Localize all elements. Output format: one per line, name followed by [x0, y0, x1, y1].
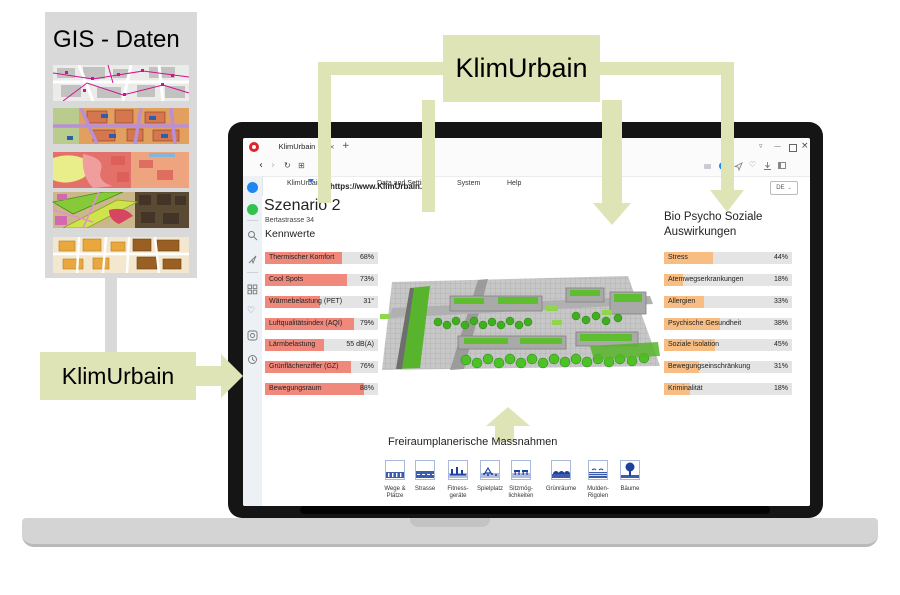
klimurbain-top-label: KlimUrbain: [443, 35, 600, 102]
scenario-subtitle: Bertastrasse 34: [265, 217, 314, 224]
metric-bar: Wärmebelastung (PET)31°: [265, 296, 378, 308]
massnahme-label: Bäume: [608, 486, 652, 493]
metric-bar: Allergien33%: [664, 296, 792, 308]
connector-to-menu: [318, 62, 331, 203]
up-arrow-head: [486, 407, 530, 426]
connector-top-left-horizontal: [318, 62, 443, 75]
left-arrow-head: [221, 354, 243, 398]
heart-icon[interactable]: ♡: [247, 306, 255, 316]
metric-bar: Lärmbelastung55 dB(A): [265, 339, 378, 351]
metric-bar: Psychische Gesundheit38%: [664, 318, 792, 330]
menu-item-klimurbain[interactable]: KlimUrbain: [287, 180, 321, 187]
gruenraeume-icon: [551, 460, 571, 480]
zoning-map: [52, 108, 190, 144]
bar-value: 45%: [774, 339, 788, 351]
send-to-flow-icon[interactable]: [734, 162, 743, 171]
bar-label: Stress: [668, 252, 688, 264]
bar-value: 33%: [774, 296, 788, 308]
speed-dial-icon[interactable]: ⊞: [298, 161, 305, 170]
bookmark-heart-icon[interactable]: ♡: [749, 160, 756, 169]
new-tab-button[interactable]: +: [342, 141, 350, 151]
fitnessgeraete-icon: [448, 460, 468, 480]
opera-logo-icon[interactable]: [249, 142, 259, 152]
snapshot-icon[interactable]: [704, 164, 711, 169]
baeume-icon: [620, 460, 640, 480]
grid-icon[interactable]: [247, 284, 258, 295]
my-flow-icon[interactable]: [247, 254, 258, 265]
bar-value: 44%: [774, 252, 788, 264]
bar-label: Luftqualitätsindex (AQI): [269, 318, 342, 330]
klimurbain-top-text: KlimUrbain: [455, 53, 587, 84]
metric-bar: Thermischer Komfort68%: [265, 252, 378, 264]
restore-icon[interactable]: [789, 144, 797, 152]
arrow-to-auswirkungen-head: [710, 190, 744, 212]
auswirkungen-title-line1: Bio Psycho Soziale: [664, 211, 762, 223]
sidebar-divider: [247, 220, 258, 221]
instagram-icon[interactable]: [247, 330, 258, 341]
bar-label: Atemwegserkrankungen: [668, 274, 744, 286]
bar-label: Psychische Gesundheit: [668, 318, 741, 330]
bar-value: 18%: [774, 274, 788, 286]
strasse-icon: [415, 460, 435, 480]
metric-bar: Luftqualitätsindex (AQI)79%: [265, 318, 378, 330]
greenspace-map: [52, 192, 190, 228]
panels-icon[interactable]: [778, 162, 786, 169]
forward-icon[interactable]: ›: [271, 160, 275, 171]
gis-data-box: GIS - Daten: [45, 12, 197, 278]
search-icon[interactable]: [247, 230, 258, 241]
bar-label: Bewegungseinschränkung: [668, 361, 750, 373]
bar-value: 38%: [774, 318, 788, 330]
gis-to-klimurbain-connector: [105, 276, 117, 354]
connector-to-settings: [422, 100, 435, 212]
bar-label: Allergien: [668, 296, 695, 308]
bar-value: 88%: [360, 383, 374, 395]
city-3d-model[interactable]: [380, 248, 662, 403]
bar-value: 76%: [360, 361, 374, 373]
history-clock-icon[interactable]: [247, 354, 258, 365]
chevron-down-icon: ⌄: [788, 185, 792, 191]
auswirkungen-title-line2: Auswirkungen: [664, 226, 736, 238]
menu-item-help[interactable]: Help: [507, 180, 521, 187]
whatsapp-icon[interactable]: [247, 204, 258, 215]
metric-bar: Stress44%: [664, 252, 792, 264]
bar-value: 31%: [774, 361, 788, 373]
massnahme-sitzmoeglichkeiten[interactable]: Sitzmög- lichkeiten: [499, 460, 543, 500]
bar-label: Lärmbelastung: [269, 339, 315, 351]
bar-label: Bewegungsraum: [269, 383, 322, 395]
browser-sidebar: ♡ ⋯: [243, 176, 263, 506]
klimurbain-diagram: GIS - Daten: [0, 0, 900, 595]
window-close-icon[interactable]: ×: [801, 141, 809, 151]
language-selector[interactable]: DE⌄: [770, 181, 798, 195]
massnahme-label: Sitzmög- lichkeiten: [499, 486, 543, 500]
klimurbain-left-text: KlimUrbain: [62, 363, 174, 390]
left-arrow-shaft: [196, 366, 221, 386]
metric-bar: Kriminalität18%: [664, 383, 792, 395]
klimurbain-left-label: KlimUrbain: [40, 352, 196, 400]
metric-bar: Soziale Isolation45%: [664, 339, 792, 351]
back-icon[interactable]: ‹: [259, 160, 263, 171]
bar-value: 31°: [363, 296, 374, 308]
gis-data-title: GIS - Daten: [53, 26, 191, 54]
arrow-to-model-head: [593, 203, 631, 225]
bar-label: Cool Spots: [269, 274, 303, 286]
page-content: Szenario 2 Bertastrasse 34 Kennwerte The…: [262, 196, 810, 506]
download-icon[interactable]: [763, 161, 772, 171]
kennwerte-title: Kennwerte: [265, 228, 315, 240]
bar-value: 73%: [360, 274, 374, 286]
reload-icon[interactable]: ↻: [284, 161, 291, 170]
bar-label: Kriminalität: [668, 383, 703, 395]
landuse-map: [52, 237, 190, 273]
bar-label: Soziale Isolation: [668, 339, 719, 351]
metric-bar: Bewegungsraum88%: [265, 383, 378, 395]
mulden-rigolen-icon: [588, 460, 608, 480]
bar-label: Grünflächenziffer (GZ): [269, 361, 339, 373]
auswirkungen-title: Bio Psycho SozialeAuswirkungen: [664, 210, 762, 240]
cadastral-street-map: [52, 65, 190, 101]
bar-label: Thermischer Komfort: [269, 252, 334, 264]
metric-bar: Atemwegserkrankungen18%: [664, 274, 792, 286]
bar-value: 79%: [360, 318, 374, 330]
wege-plaetze-icon: [385, 460, 405, 480]
bar-value: 55 dB(A): [346, 339, 374, 351]
sitzmoeglichkeiten-icon: [511, 460, 531, 480]
messenger-icon[interactable]: [247, 182, 258, 193]
arrow-to-model-shaft: [602, 100, 622, 204]
sidebar-divider: [247, 272, 258, 273]
connector-top-right-horizontal: [600, 62, 734, 75]
metric-bar: Grünflächenziffer (GZ)76%: [265, 361, 378, 373]
metric-bar: Cool Spots73%: [265, 274, 378, 286]
laptop-hinge: [300, 506, 770, 514]
spielplatz-icon: [480, 460, 500, 480]
heat-map: [52, 152, 190, 188]
massnahme-baeume[interactable]: Bäume: [608, 460, 652, 493]
laptop-notch: [410, 518, 490, 527]
massnahmen-title: Freiraumplanerische Massnahmen: [388, 436, 557, 448]
bar-label: Wärmebelastung (PET): [269, 296, 342, 308]
menu-dropdown-marker: [308, 179, 314, 183]
minimize-icon[interactable]: —: [774, 142, 781, 150]
metric-bar: Bewegungseinschränkung31%: [664, 361, 792, 373]
language-value: DE: [776, 185, 784, 191]
menu-item-system[interactable]: System: [457, 180, 480, 187]
arrow-to-auswirkungen-shaft: [721, 62, 734, 190]
bar-value: 68%: [360, 252, 374, 264]
bar-value: 18%: [774, 383, 788, 395]
window-menu-icon[interactable]: ▿: [759, 142, 763, 150]
